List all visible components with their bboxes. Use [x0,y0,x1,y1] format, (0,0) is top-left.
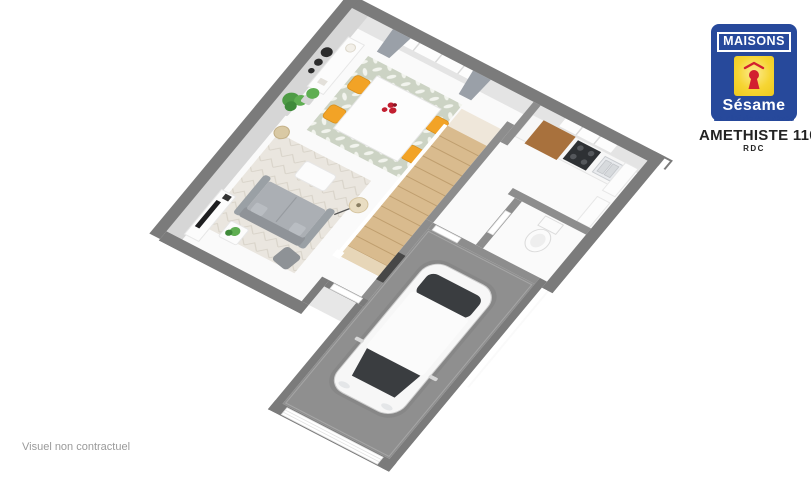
page: MAISONS Sésame La clef de vos rêves AMET… [0,0,811,480]
plan-title: AMETHISTE 110 GI [699,127,811,144]
logo-card: MAISONS Sésame [711,24,797,121]
floor-plan-render [0,0,811,480]
logo-tagline: La clef de vos rêves [703,113,805,123]
keyhole-icon [741,61,767,91]
sesame-wordmark: Sésame [711,98,797,114]
logo-yellow-square [734,56,774,96]
maisons-wordmark: MAISONS [717,32,791,52]
disclaimer-text: Visuel non contractuel [22,441,130,453]
floor-label: RDC [699,144,809,153]
